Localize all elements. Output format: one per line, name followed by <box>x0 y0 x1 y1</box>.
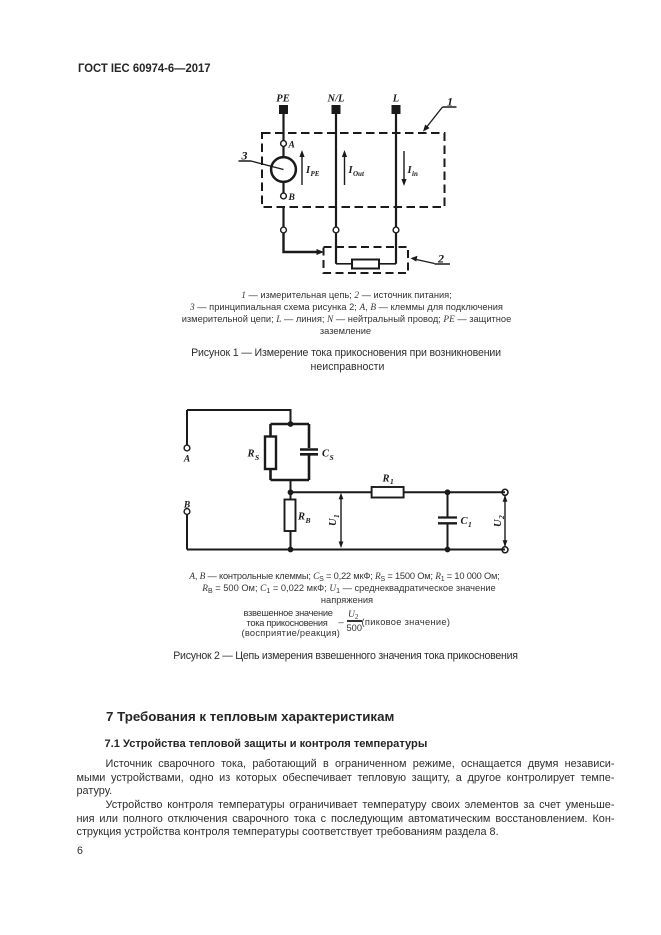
svg-text:L: L <box>392 94 399 105</box>
svg-text:R: R <box>382 474 390 485</box>
svg-text:PE: PE <box>311 170 320 178</box>
svg-text:S: S <box>255 453 259 462</box>
svg-text:1: 1 <box>332 514 341 518</box>
svg-text:1: 1 <box>468 520 472 529</box>
svg-text:B: B <box>305 516 311 525</box>
svg-text:N/L: N/L <box>327 94 345 105</box>
svg-text:R: R <box>297 512 305 523</box>
svg-text:A: A <box>288 141 295 151</box>
svg-text:PE: PE <box>276 94 289 105</box>
svg-text:Out: Out <box>353 170 365 178</box>
svg-text:R: R <box>247 449 255 460</box>
svg-text:1: 1 <box>390 477 394 486</box>
svg-text:B: B <box>288 193 295 203</box>
svg-text:S: S <box>330 453 334 462</box>
svg-text:2: 2 <box>497 515 506 520</box>
svg-text:in: in <box>412 170 418 178</box>
svg-text:A: A <box>183 455 190 465</box>
